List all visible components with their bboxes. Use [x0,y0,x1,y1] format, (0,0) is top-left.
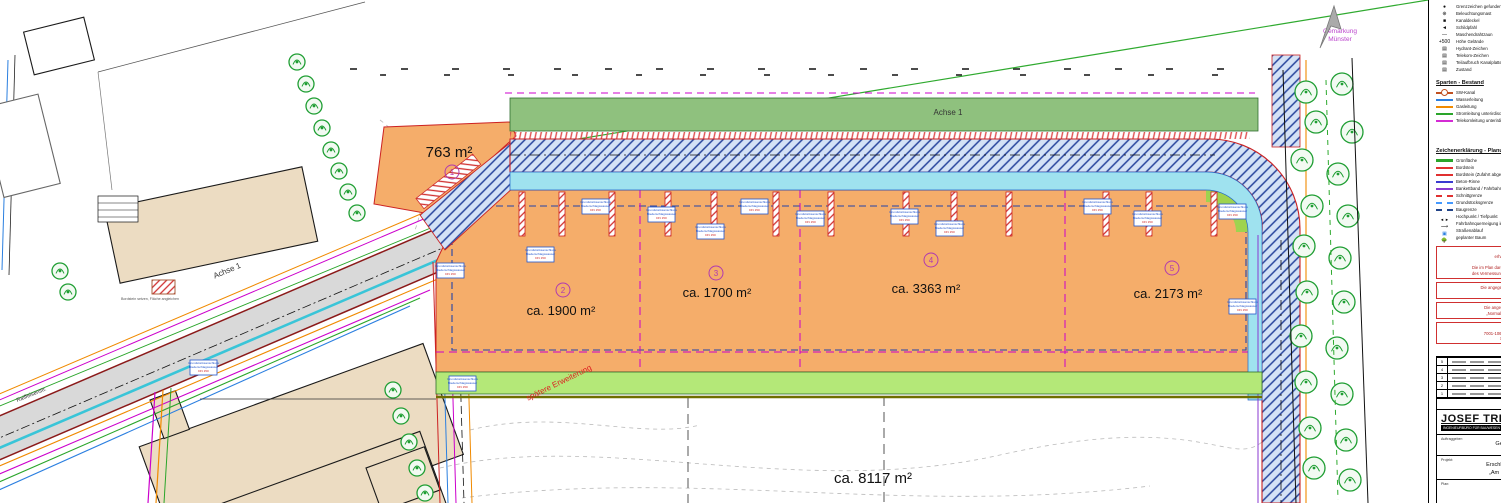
tree-icon [1299,417,1321,439]
note-box: Die angegebenen Höhen entspre„Normalhöhe… [1436,302,1501,319]
connection-box: GrundstücksanschlussNiederschlagswasserD… [934,221,966,236]
legend-symbols: ●Grenzzeichen gefunden 16/16⊕Beleuchtung… [1436,3,1501,73]
legend-symbol-icon: — [1436,32,1453,38]
legend-swatch [1436,92,1453,94]
tree-icon [1331,383,1353,405]
tree-icon [385,382,401,398]
service-connection-bar [773,192,779,236]
legend-row: Telekomleitung unterirdisch [1436,117,1501,124]
legend-symbol-icon: ● [1436,4,1453,10]
legend-row: Grundstücksgrenze [1436,199,1501,206]
revision-table: 54321 [1436,356,1501,398]
legend-swatch [1436,181,1453,183]
legend-symbol-icon: ▤ [1436,46,1453,52]
tree-icon [1295,371,1317,393]
legend-row: +500Höhe Gelände [1436,38,1501,45]
north-branch [1272,55,1300,147]
connection-box: GrundstücksanschlussNiederschlagswasserD… [695,224,727,239]
tree-icon [306,98,322,114]
legend-row: Stromleitung unterirdisch [1436,110,1501,117]
legend-swatch [1436,174,1453,176]
tree-icon [1341,121,1363,143]
tree-icon [1301,195,1323,217]
connection-box: GrundstücksanschlussNiederschlagswasserD… [889,209,921,224]
tree-icon [289,54,305,70]
tree-icon [417,485,433,501]
service-connection-bar [519,192,525,236]
tree-icon [1335,429,1357,451]
legend-symbol-icon: ▤ [1436,67,1453,73]
tree-icon [323,142,339,158]
svg-text:2: 2 [561,286,566,295]
revision-row: 3 [1437,374,1501,382]
connection-box: GrundstücksanschlussNiederschlagswasserD… [447,376,479,391]
tree-icon [52,263,68,279]
legend-row: ◄ ►Hochpunkt / Tiefpunkt [1436,213,1501,220]
tree-icon [393,408,409,424]
legend-row: Wasserleitung [1436,96,1501,103]
legend-panel: ●Grenzzeichen gefunden 16/16⊕Beleuchtung… [1428,0,1501,503]
revision-row: 1 [1437,390,1501,397]
axis-main-label: Achse 1 [934,108,963,117]
legend-row: ▤Teilaufbruch Kanalplatten [1436,59,1501,66]
plan-line2: Straße [1441,494,1501,502]
company-subtitle: INGENIEURBÜRO FÜR BAUWESEN [1441,425,1501,431]
connection-box: GrundstücksanschlussNiederschlagswasserD… [646,207,678,222]
legend-row: ●Grenzzeichen gefunden 16/16 [1436,3,1501,10]
project-line2: „Am Hoffeld II“ in M [1441,470,1501,478]
legend-swatch [1436,202,1453,204]
tree-icon [1331,73,1353,95]
legend-row: ▤Telekom-Zeichen [1436,52,1501,59]
client-name: Gemeinde Mü [1441,441,1501,449]
svg-text:Münster: Münster [1328,36,1352,43]
svg-text:5: 5 [1170,264,1175,273]
site-plan-screenshot: GrundstücksanschlussNiederschlagswasserD… [0,0,1501,503]
tree-icon [340,184,356,200]
legend-swatch [1436,106,1453,108]
company-name: JOSEF TREMEL [1441,413,1501,425]
tree-icon [331,163,347,179]
axis-left-label: Achse 1 [212,261,243,281]
connection-box: GrundstücksanschlussNiederschlagswasserD… [795,211,827,226]
tree-icon [349,205,365,221]
legend-row: Beton-Rinne [1436,178,1501,185]
parcel-5-area-label: ca. 2173 m² [1134,286,1203,301]
service-connection-bar [828,192,834,236]
note-box: verwendet7001-1060-Hochheimer Straße: LS… [1436,322,1501,344]
connection-box: GrundstücksanschlussNiederschlagswasserD… [1132,211,1164,226]
titleblock-header: - Au [1437,399,1501,410]
legend-swatch [1436,188,1453,190]
service-connection-bar [609,192,615,236]
tree-icon [1303,457,1325,479]
title-block: - Au JOSEF TREMEL INGENIEURBÜRO FÜR BAUW… [1436,398,1501,503]
legend-row: Baugrenze [1436,206,1501,213]
tree-icon [1293,235,1315,257]
service-connection-bar [1211,192,1217,236]
legend-swatch [1436,113,1453,115]
tree-icon [401,434,417,450]
legend-symbol-icon: ⊕ [1436,11,1453,17]
legend-row: ▤Zustand [1436,66,1501,73]
tree-icon [1295,81,1317,103]
tree-icon [1333,291,1355,313]
legend-row: Bordstein [1436,164,1501,171]
revision-row: 2 [1437,382,1501,390]
revision-row: 5 [1437,358,1501,366]
legend-row: SW-Kanal [1436,89,1501,96]
connection-box: GrundstücksanschlussNiederschlagswasserD… [1082,199,1114,214]
notes-boxes: Amtliche derhalten von der BayeStaDie im… [1436,246,1501,347]
legend-row: Grünfläche [1436,157,1501,164]
connection-box: GrundstücksanschlussNiederschlagswasserD… [739,199,771,214]
tree-icon [1326,337,1348,359]
legend-row: —Maschendrahtzaun [1436,31,1501,38]
project-line1: Erschließung Gewerb [1441,462,1501,470]
tree-icon [1290,325,1312,347]
connection-box: GrundstücksanschlussNiederschlagswasserD… [1217,204,1249,219]
tree-icon [298,76,314,92]
legend-symbol-icon: ▤ [1436,53,1453,59]
parcel-2-area-label: ca. 1900 m² [527,303,596,318]
service-connection-bar [1006,192,1012,236]
legend-row: ■Kanaldeckel [1436,17,1501,24]
connection-box: GrundstücksanschlussNiederschlagswasserD… [580,199,612,214]
note-box: Die angegebenen Lagekoordinaten eUTM [1436,282,1501,299]
sparten-title: Sparten - Bestand [1436,80,1501,86]
tree-icon [1329,247,1351,269]
connection-box: GrundstücksanschlussNiederschlagswasserD… [1227,299,1259,314]
tree-icon [1327,163,1349,185]
plan-line1: Lageplan [1441,486,1501,494]
tree-icon [409,460,425,476]
tree-icon [314,120,330,136]
connection-box: GrundstücksanschlussNiederschlagswasserD… [435,263,467,278]
tree-icon [60,284,76,300]
curb-note-label: Bordstein setzen, Fläche angleichen [121,297,179,301]
legend-symbol-icon: +500 [1436,39,1453,45]
legend-swatch [1436,99,1453,101]
connection-box: GrundstücksanschlussNiederschlagswasserD… [525,247,557,262]
green-strip-top [510,98,1258,131]
svg-text:1: 1 [450,168,455,177]
svg-text:4: 4 [929,256,934,265]
service-connection-bar [559,192,565,236]
legend-row: ◄Schildpfahl [1436,24,1501,31]
connection-box: GrundstücksanschlussNiederschlagswasserD… [188,360,220,375]
legend-row: Bankettband / Fahrbahnrand (unbef.) [1436,185,1501,192]
legend-swatch [1436,209,1453,211]
planung-title: Zeichenerklärung - Planung [1436,148,1501,154]
legend-row: Gasleitung [1436,103,1501,110]
tick-band [510,132,1250,139]
tree-icon [1291,149,1313,171]
legend-swatch [1436,195,1453,197]
legend-swatch [1436,159,1453,162]
parcel-1-area-label: 763 m² [426,144,473,161]
legend-swatch [1436,167,1453,169]
note-box: Amtliche derhalten von der BayeStaDie im… [1436,246,1501,279]
remaining-area-label: ca. 8117 m² [834,470,912,487]
legend-row: Schnittgrenze [1436,192,1501,199]
tree-icon [1305,111,1327,133]
tree-icon [1296,281,1318,303]
legend-swatch [1436,120,1453,122]
legend-symbol-icon: ▤ [1436,60,1453,66]
tree-icon [1339,469,1361,491]
legend-row: Bordstein (Zufahrt abgesenkt) [1436,171,1501,178]
legend-sparten: SW-KanalWasserleitungGasleitungStromleit… [1436,89,1501,124]
legend-symbol-icon: ◄ [1436,25,1453,31]
parcel-3-area-label: ca. 1700 m² [683,285,752,300]
parcel-4-area-label: ca. 3363 m² [892,281,961,296]
legend-row: ⊕Beleuchtungsmast [1436,10,1501,17]
legend-symbol-icon: ■ [1436,18,1453,24]
site-plan-drawing: GrundstücksanschlussNiederschlagswasserD… [0,0,1501,503]
legend-row: ▤Hydrant-Zeichen [1436,45,1501,52]
tree-icon [1337,205,1359,227]
svg-text:3: 3 [714,269,719,278]
revision-row: 4 [1437,366,1501,374]
legend-planung: GrünflächeBordsteinBordstein (Zufahrt ab… [1436,157,1501,241]
